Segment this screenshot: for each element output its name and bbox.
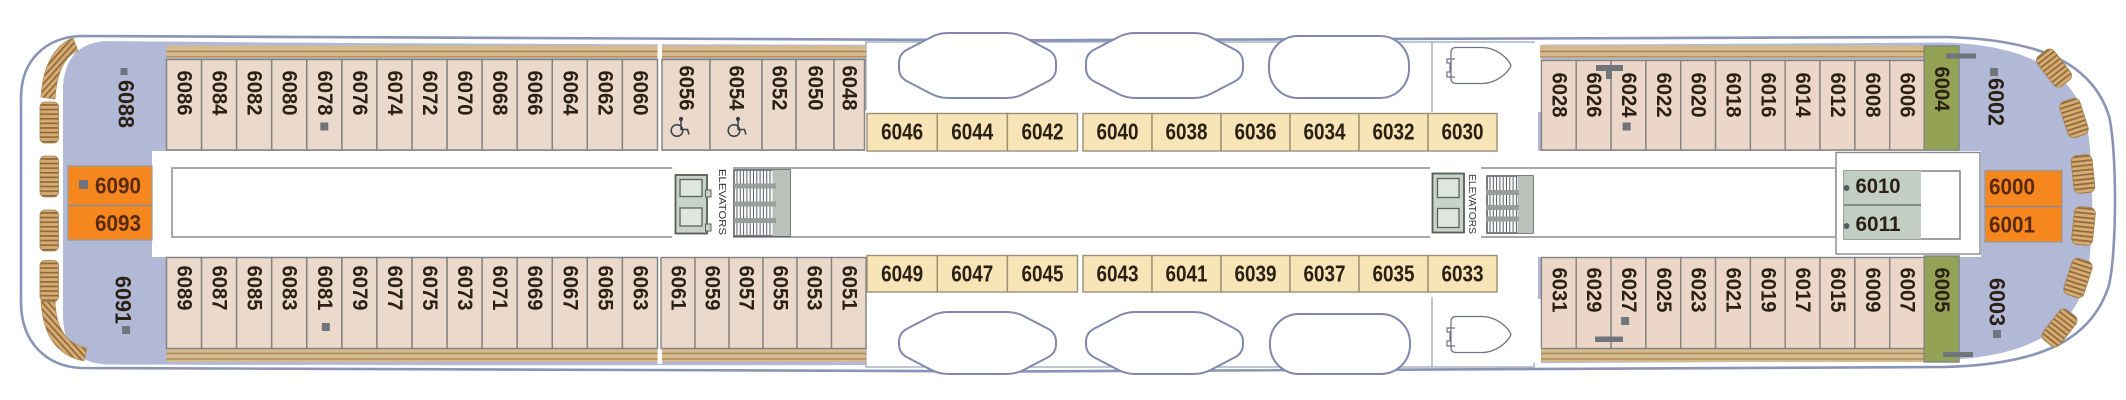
svg-text:6001: 6001 (1989, 212, 2035, 238)
svg-text:6023: 6023 (1687, 268, 1710, 313)
svg-text:6032: 6032 (1373, 119, 1415, 145)
svg-text:6088: 6088 (114, 80, 139, 128)
svg-text:6007: 6007 (1896, 268, 1919, 313)
svg-text:6093: 6093 (95, 210, 141, 236)
svg-text:6056: 6056 (675, 66, 698, 111)
svg-text:6061: 6061 (667, 266, 690, 311)
svg-text:6075: 6075 (418, 266, 441, 311)
svg-text:6025: 6025 (1652, 268, 1675, 313)
svg-text:6087: 6087 (208, 266, 231, 311)
svg-text:6022: 6022 (1652, 73, 1675, 118)
svg-text:6012: 6012 (1826, 73, 1849, 118)
svg-text:6041: 6041 (1166, 261, 1208, 287)
svg-text:6028: 6028 (1547, 73, 1570, 118)
svg-text:6051: 6051 (837, 266, 860, 311)
svg-text:6070: 6070 (453, 71, 476, 116)
svg-text:6079: 6079 (348, 266, 371, 311)
svg-text:6044: 6044 (951, 119, 993, 145)
svg-text:6004: 6004 (1930, 67, 1953, 112)
svg-text:6055: 6055 (769, 266, 792, 311)
svg-text:6037: 6037 (1304, 261, 1346, 287)
svg-text:6068: 6068 (488, 71, 511, 116)
svg-text:6034: 6034 (1304, 119, 1346, 145)
svg-text:6050: 6050 (804, 66, 827, 111)
svg-text:6054: 6054 (725, 66, 748, 111)
svg-text:6016: 6016 (1756, 73, 1779, 118)
svg-text:6033: 6033 (1442, 261, 1484, 287)
svg-text:6076: 6076 (348, 71, 371, 116)
svg-text:6089: 6089 (173, 266, 196, 311)
svg-text:6042: 6042 (1022, 119, 1064, 145)
svg-text:6024: 6024 (1617, 73, 1640, 118)
svg-text:6043: 6043 (1097, 261, 1139, 287)
svg-text:6083: 6083 (278, 266, 301, 311)
svg-text:6019: 6019 (1756, 268, 1779, 313)
svg-text:6078: 6078 (313, 71, 336, 116)
svg-text:6065: 6065 (593, 266, 616, 311)
svg-text:6005: 6005 (1930, 268, 1953, 313)
svg-text:6091: 6091 (111, 276, 136, 324)
svg-text:6090: 6090 (95, 173, 141, 199)
svg-text:ELEVATORS: ELEVATORS (1466, 174, 1477, 234)
svg-text:6062: 6062 (593, 71, 616, 116)
svg-text:6067: 6067 (558, 266, 581, 311)
svg-text:6038: 6038 (1166, 119, 1208, 145)
svg-text:6066: 6066 (523, 71, 546, 116)
svg-text:6036: 6036 (1235, 119, 1277, 145)
svg-text:6000: 6000 (1989, 174, 2035, 200)
svg-text:6018: 6018 (1722, 73, 1745, 118)
svg-text:6045: 6045 (1022, 261, 1064, 287)
svg-text:6074: 6074 (383, 71, 406, 116)
svg-text:6057: 6057 (735, 266, 758, 311)
svg-text:6082: 6082 (243, 71, 266, 116)
svg-text:6021: 6021 (1722, 268, 1745, 313)
svg-text:6084: 6084 (208, 71, 231, 116)
svg-text:6031: 6031 (1547, 268, 1570, 313)
svg-text:6002: 6002 (1984, 78, 2009, 126)
svg-text:6020: 6020 (1687, 73, 1710, 118)
svg-text:6060: 6060 (628, 71, 651, 116)
svg-text:6030: 6030 (1442, 119, 1484, 145)
svg-text:6047: 6047 (951, 261, 993, 287)
svg-text:6071: 6071 (488, 266, 511, 311)
svg-text:6006: 6006 (1896, 73, 1919, 118)
svg-text:6053: 6053 (803, 266, 826, 311)
svg-text:6009: 6009 (1861, 268, 1884, 313)
svg-text:6014: 6014 (1791, 73, 1814, 118)
svg-text:6027: 6027 (1617, 268, 1640, 313)
svg-text:6040: 6040 (1097, 119, 1139, 145)
svg-text:6048: 6048 (838, 66, 861, 111)
svg-text:6017: 6017 (1791, 268, 1814, 313)
svg-text:6072: 6072 (418, 71, 441, 116)
svg-text:6008: 6008 (1861, 73, 1884, 118)
svg-text:6026: 6026 (1582, 73, 1605, 118)
svg-text:6046: 6046 (881, 119, 923, 145)
svg-text:6073: 6073 (453, 266, 476, 311)
svg-text:6015: 6015 (1826, 268, 1849, 313)
svg-text:6003: 6003 (1985, 278, 2010, 326)
svg-text:6069: 6069 (523, 266, 546, 311)
svg-text:6011: 6011 (1856, 213, 1901, 236)
svg-text:6081: 6081 (313, 266, 336, 311)
svg-text:ELEVATORS: ELEVATORS (716, 169, 727, 235)
svg-text:6029: 6029 (1582, 268, 1605, 313)
svg-text:6049: 6049 (881, 261, 923, 287)
svg-text:6052: 6052 (768, 66, 791, 111)
svg-text:6064: 6064 (558, 71, 581, 116)
svg-text:6010: 6010 (1856, 175, 1901, 198)
svg-text:6063: 6063 (628, 266, 651, 311)
svg-text:6059: 6059 (701, 266, 724, 311)
svg-text:6085: 6085 (243, 266, 266, 311)
svg-text:6077: 6077 (383, 266, 406, 311)
svg-text:6086: 6086 (173, 71, 196, 116)
svg-text:6080: 6080 (278, 71, 301, 116)
svg-text:6035: 6035 (1373, 261, 1415, 287)
svg-text:6039: 6039 (1235, 261, 1277, 287)
